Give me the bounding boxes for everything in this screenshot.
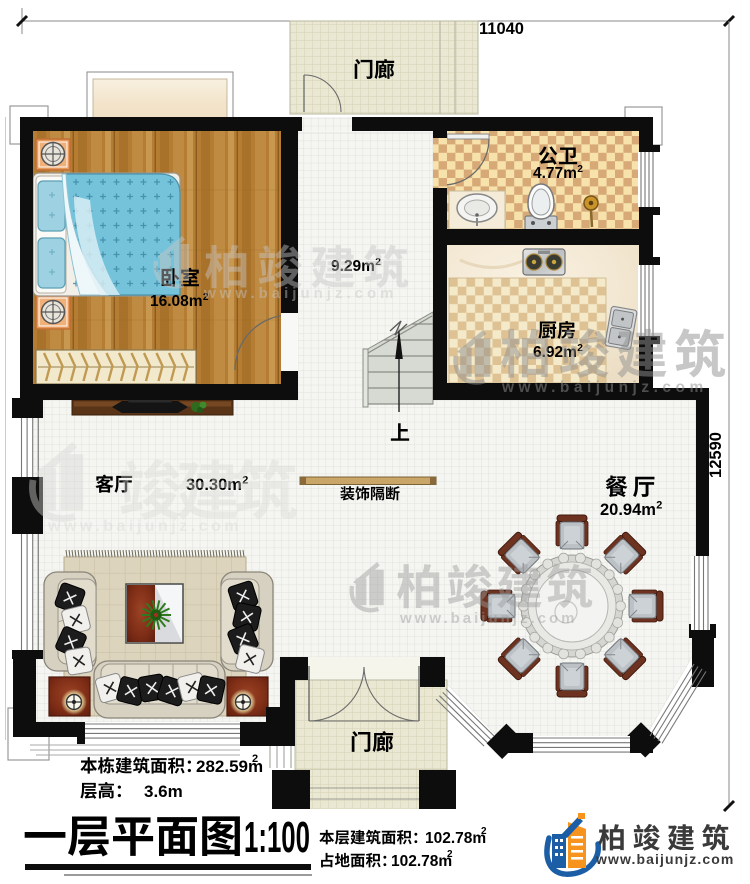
svg-text:102.78m: 102.78m [391,853,452,870]
svg-text:www.baijunjz.com: www.baijunjz.com [203,285,397,302]
svg-text:www.baijunjz.com: www.baijunjz.com [399,610,577,627]
svg-text:12590: 12590 [707,432,725,478]
svg-text:2: 2 [577,164,583,175]
svg-text:2: 2 [481,826,487,837]
svg-text:16.08m: 16.08m [150,293,203,310]
svg-text:www.baijunjz.com: www.baijunjz.com [501,379,708,396]
svg-text:www.baijunjz.com: www.baijunjz.com [47,518,242,535]
svg-text:102.78m: 102.78m [425,830,486,847]
svg-text:3.6m: 3.6m [144,782,183,801]
svg-text:www.baijunjz.com: www.baijunjz.com [595,851,734,867]
svg-text:2: 2 [656,499,662,511]
svg-text:4.77m: 4.77m [533,165,577,182]
svg-text:1:100: 1:100 [244,813,310,862]
svg-text:11040: 11040 [479,20,524,38]
svg-text:2: 2 [447,849,453,860]
svg-text:20.94m: 20.94m [600,501,656,519]
svg-text:2: 2 [252,753,258,765]
